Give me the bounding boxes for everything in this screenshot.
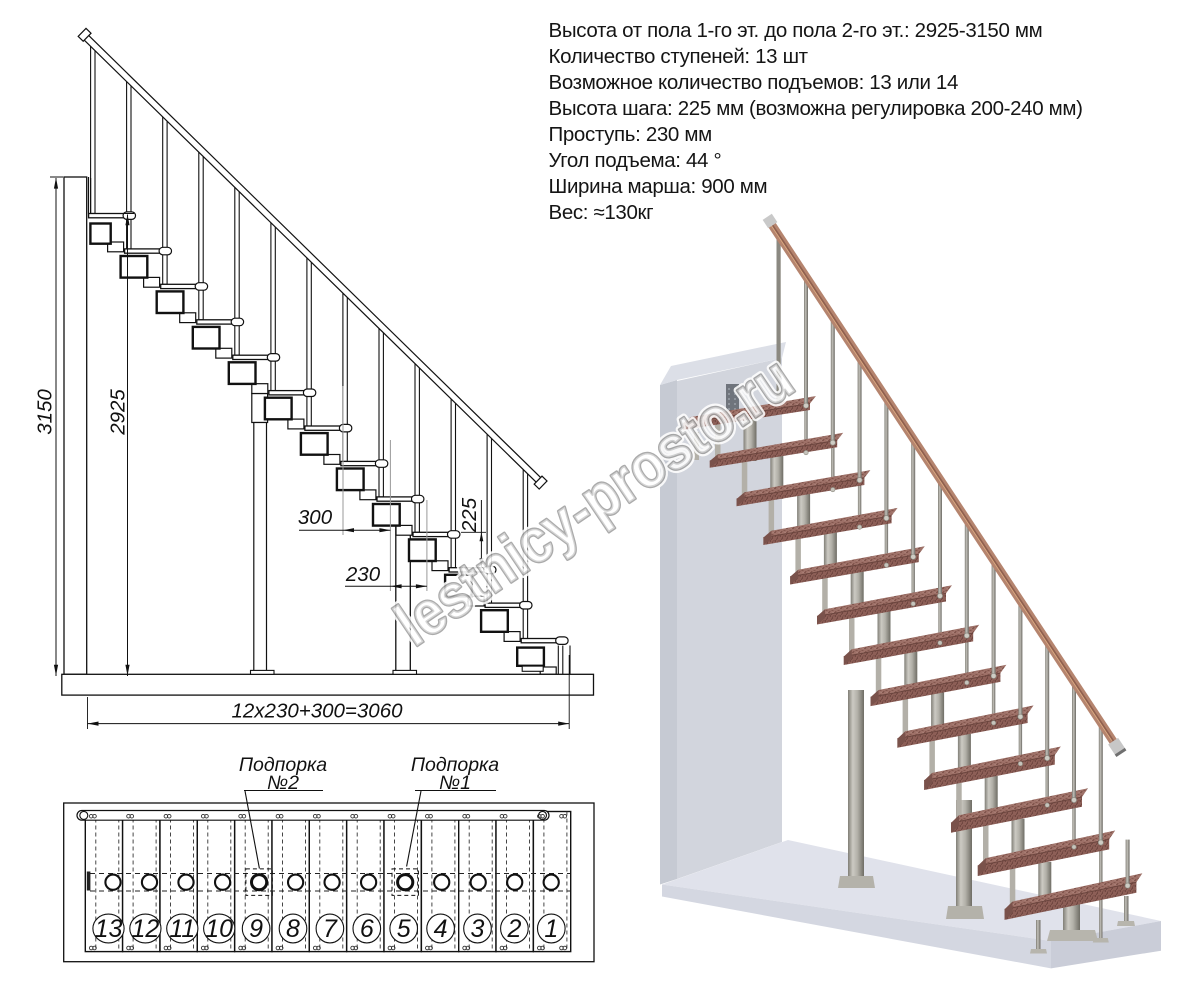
svg-text:Вес: ≈130кг: Вес: ≈130кг	[549, 201, 654, 224]
svg-text:4: 4	[434, 915, 448, 943]
svg-text:12x230+300=3060: 12x230+300=3060	[231, 700, 403, 723]
svg-text:1: 1	[544, 915, 558, 943]
svg-text:Возможное количество подъемов:: Возможное количество подъемов: 13 или 14	[549, 71, 959, 94]
svg-text:Угол подъема: 44 °: Угол подъема: 44 °	[549, 149, 722, 172]
svg-text:Высота шага: 225 мм (возможна: Высота шага: 225 мм (возможна регулировк…	[549, 97, 1083, 120]
svg-text:12: 12	[131, 915, 159, 943]
svg-text:2925: 2925	[107, 389, 130, 436]
svg-text:225: 225	[458, 497, 481, 533]
svg-text:6: 6	[360, 915, 374, 943]
svg-text:5: 5	[397, 915, 411, 943]
svg-text:2: 2	[506, 915, 521, 943]
svg-text:300: 300	[298, 506, 333, 529]
svg-text:11: 11	[169, 915, 195, 943]
svg-text:Проступь: 230 мм: Проступь: 230 мм	[549, 123, 712, 146]
svg-text:Ширина марша: 900 мм: Ширина марша: 900 мм	[549, 175, 768, 198]
svg-text:13: 13	[95, 915, 123, 943]
svg-text:Высота от пола 1-го эт. до пол: Высота от пола 1-го эт. до пола 2-го эт.…	[549, 19, 1043, 42]
svg-text:3150: 3150	[34, 389, 57, 435]
svg-text:3: 3	[471, 915, 485, 943]
svg-text:Количество ступеней: 13 шт: Количество ступеней: 13 шт	[549, 45, 809, 68]
svg-text:8: 8	[286, 915, 300, 943]
svg-text:10: 10	[205, 915, 233, 943]
svg-text:7: 7	[323, 915, 338, 943]
svg-text:230: 230	[345, 563, 381, 586]
svg-text:9: 9	[249, 915, 263, 943]
